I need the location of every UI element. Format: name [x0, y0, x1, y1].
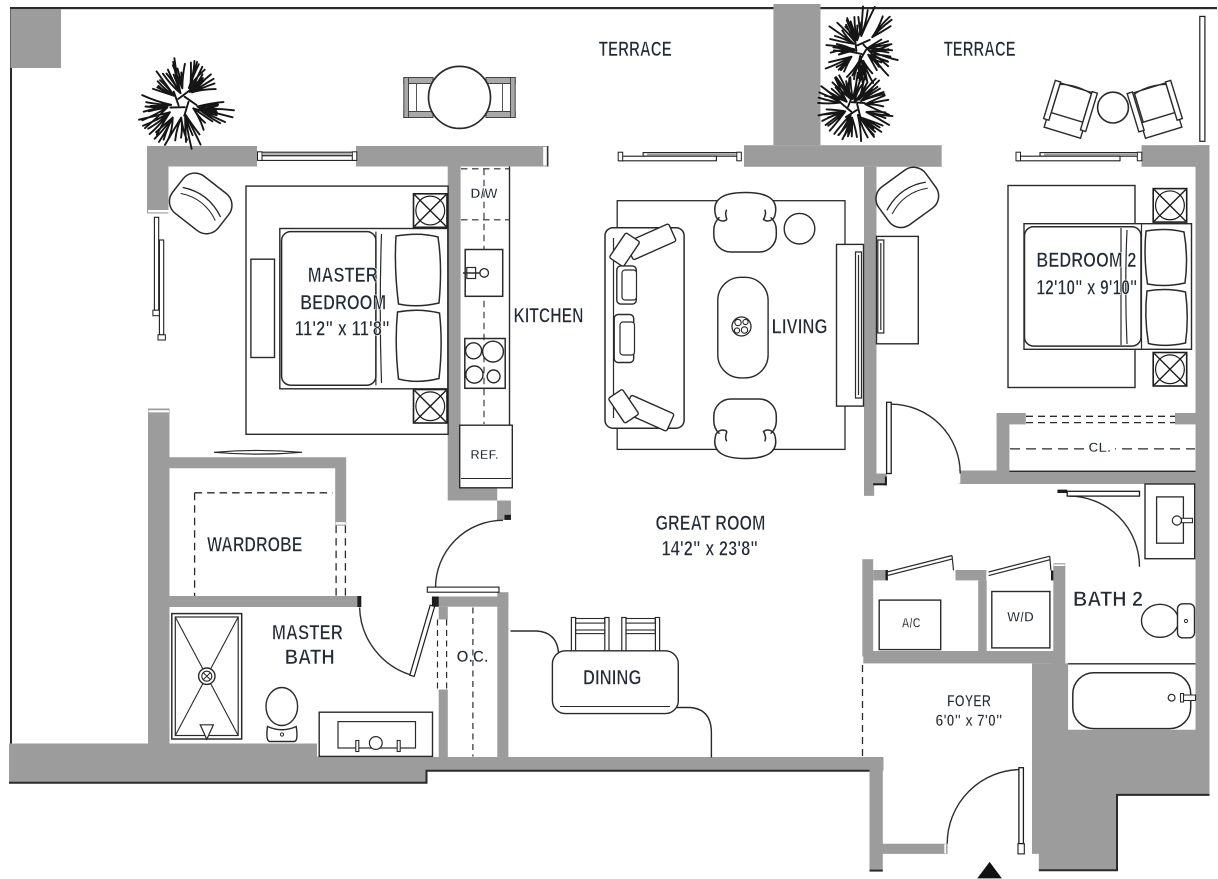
- svg-text:11'2" x 11'8": 11'2" x 11'8": [295, 317, 390, 340]
- svg-text:12'10" x 9'10": 12'10" x 9'10": [1036, 276, 1137, 299]
- svg-text:BEDROOM 2: BEDROOM 2: [1036, 249, 1136, 272]
- svg-text:TERRACE: TERRACE: [599, 38, 672, 61]
- svg-text:TERRACE: TERRACE: [944, 38, 1016, 61]
- svg-text:BATH: BATH: [285, 646, 335, 669]
- svg-text:KITCHEN: KITCHEN: [514, 304, 584, 327]
- svg-text:MASTER: MASTER: [308, 264, 378, 287]
- svg-text:6'0" x 7'0": 6'0" x 7'0": [936, 712, 1003, 730]
- svg-text:GREAT ROOM: GREAT ROOM: [656, 512, 766, 535]
- svg-text:FOYER: FOYER: [947, 692, 991, 710]
- svg-text:WARDROBE: WARDROBE: [207, 534, 303, 557]
- svg-text:REF.: REF.: [470, 447, 498, 462]
- svg-text:DINING: DINING: [583, 666, 642, 689]
- svg-text:W/D: W/D: [1007, 609, 1034, 624]
- svg-text:A/C: A/C: [902, 616, 921, 631]
- svg-text:BEDROOM: BEDROOM: [300, 291, 386, 314]
- svg-text:BATH 2: BATH 2: [1073, 588, 1143, 611]
- svg-text:D/W: D/W: [470, 185, 498, 201]
- svg-text:LIVING: LIVING: [772, 316, 828, 339]
- svg-text:CL.: CL.: [1088, 439, 1111, 455]
- svg-text:14'2" x 23'8": 14'2" x 23'8": [662, 537, 759, 560]
- svg-text:MASTER: MASTER: [272, 621, 343, 644]
- svg-text:O.C.: O.C.: [457, 648, 489, 666]
